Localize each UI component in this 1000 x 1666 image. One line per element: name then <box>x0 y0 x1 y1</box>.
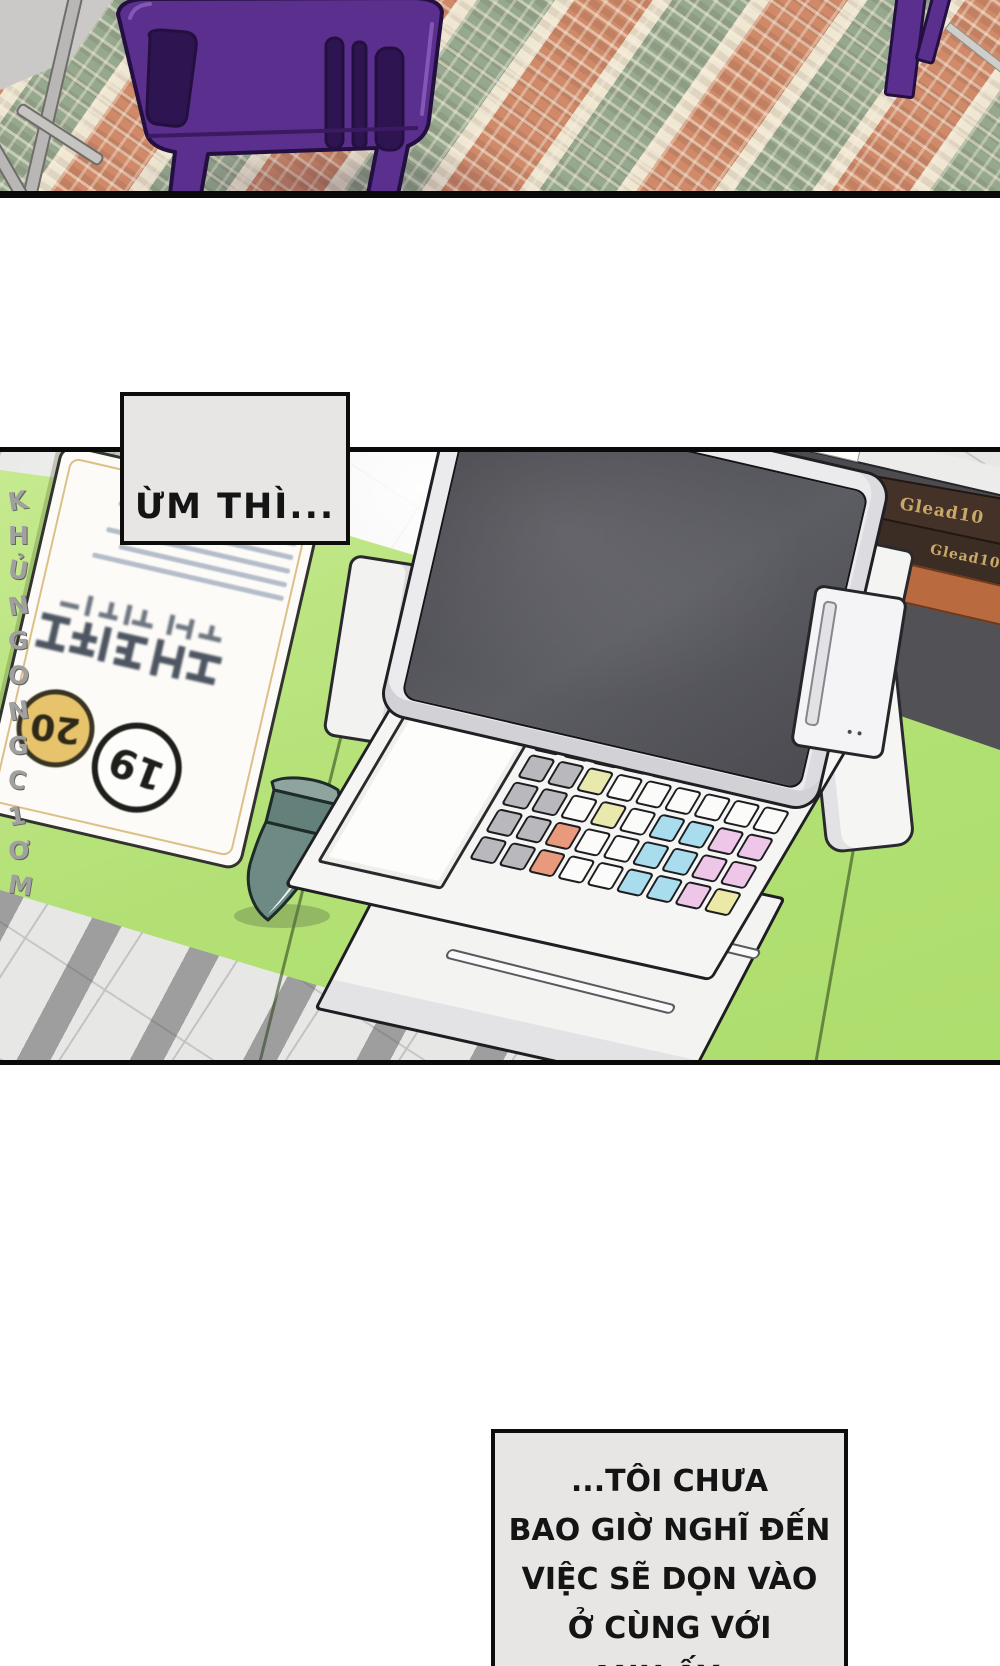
speech-box-2: ...TÔI CHƯA BAO GIỜ NGHĨ ĐẾN VIỆC SẼ DỌN… <box>491 1429 848 1666</box>
watermark-vertical: KHỦNGONGC1ƠM <box>8 488 33 898</box>
sign-korean-title <box>32 586 232 691</box>
purple-chair <box>88 0 468 196</box>
comic-page: Glead10 Glead10 19 20 <box>0 0 1000 1666</box>
watermark-letter: G <box>8 628 33 653</box>
speech-2-line: Ở CÙNG VỚI <box>495 1604 844 1653</box>
watermark-letter: N <box>6 696 34 725</box>
watermark-letter: M <box>6 871 34 900</box>
watermark-letter: G <box>8 733 33 758</box>
product-label: Glead10 <box>929 542 1000 573</box>
speech-2-line: ANH ẤY... <box>495 1653 844 1666</box>
speech-2-line: VIỆC SẼ DỌN VÀO <box>495 1555 844 1604</box>
watermark-letter: Ủ <box>6 556 34 585</box>
watermark-letter: 1 <box>6 801 34 830</box>
watermark-letter: O <box>6 661 34 690</box>
watermark-letter: H <box>8 523 33 548</box>
card-slot <box>804 600 838 727</box>
watermark-letter: Ơ <box>8 838 33 863</box>
speech-2-line: BAO GIỜ NGHĨ ĐẾN <box>495 1506 844 1555</box>
speech-2-line: ...TÔI CHƯA <box>495 1457 844 1506</box>
age-19-circle: 19 <box>79 709 195 825</box>
panel-cafe-floor <box>0 0 1000 198</box>
watermark-letter: N <box>6 591 34 620</box>
speech-1-text: ỪM THÌ... <box>135 487 335 527</box>
speech-box-1: ỪM THÌ... <box>120 392 350 545</box>
watermark-letter: K <box>6 486 34 515</box>
watermark-letter: C <box>6 766 34 795</box>
